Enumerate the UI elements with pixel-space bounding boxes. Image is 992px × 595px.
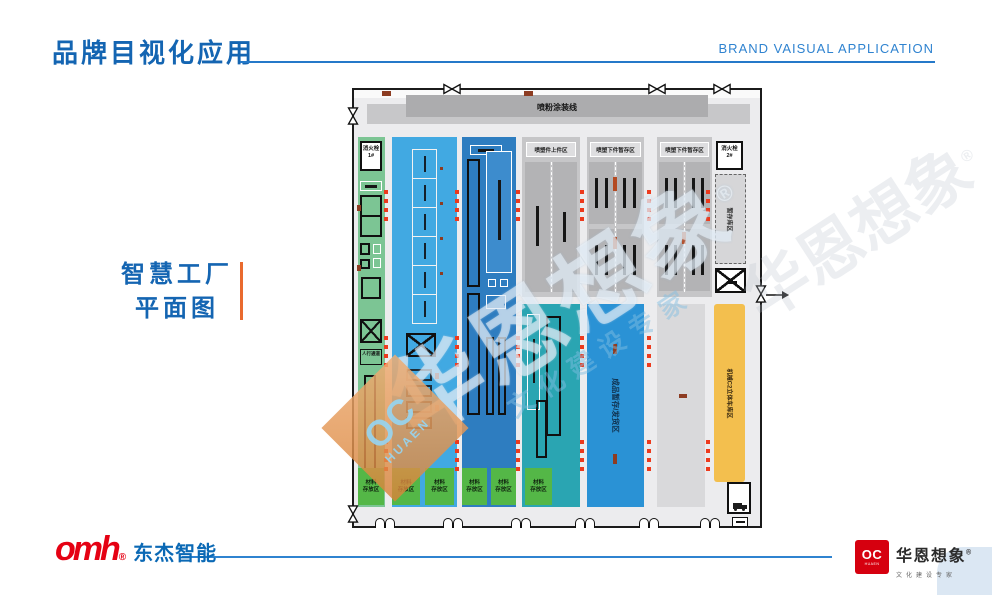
page-title: 品牌目视化应用 [52, 33, 255, 70]
window-symbol [347, 107, 359, 125]
paint-line-label: 喷粉涂装线 [406, 102, 708, 113]
storage-column [553, 162, 577, 292]
zone-teal-process: 材料 存放区 [522, 304, 580, 507]
window-symbol [648, 83, 666, 95]
dashed-aisle [551, 162, 552, 292]
equipment [486, 295, 506, 309]
dashed-aisle [684, 162, 685, 292]
storage-block [659, 162, 683, 224]
caption-accent-bar [240, 262, 243, 320]
micro-text [665, 245, 668, 275]
micro-text [701, 178, 704, 208]
micro-text [605, 178, 608, 208]
truck-room [727, 482, 751, 514]
door-symbol [511, 518, 531, 528]
equipment-panel [527, 314, 540, 410]
zone-header: 喷塑下件暂存区 [660, 142, 709, 157]
micro-text [365, 185, 377, 188]
equipment [360, 243, 370, 255]
huaen-logo: OC HUAEN 华恩想象® 文化建设专家 [855, 540, 973, 579]
storage-column [525, 162, 550, 292]
header-rule [240, 61, 935, 63]
storage-block [617, 162, 642, 224]
micro-text [692, 178, 695, 208]
caption-line1: 智慧工厂 [97, 258, 257, 292]
micro-text [674, 245, 677, 275]
micro-text [595, 245, 598, 275]
chain-marker [440, 167, 443, 170]
crossed-equipment [406, 333, 436, 357]
storage-block [659, 229, 683, 291]
gate-room [732, 517, 748, 527]
zone-finished-goods: 成品暂存/发货区 [587, 304, 644, 507]
crossed-equipment [360, 319, 382, 343]
door-symbol [639, 518, 659, 528]
micro-text [736, 521, 745, 523]
orange-marker [613, 177, 617, 191]
door-symbol [443, 518, 463, 528]
material-storage-box: 材料 存放区 [525, 468, 552, 505]
micro-text [665, 178, 668, 208]
equipment [536, 400, 547, 458]
chain-marker [440, 202, 443, 205]
caption-line2: 平面图 [97, 292, 257, 326]
micro-text [498, 180, 501, 240]
equipment [373, 258, 381, 268]
material-storage-box: 材料 存放区 [462, 468, 487, 505]
zone-light-blue-line: 材料 存放区 材料 存放区 [392, 137, 457, 507]
equipment-label [360, 181, 382, 191]
footer-rule [182, 556, 832, 558]
fire-hydrant-2: 消火栓 2# [716, 141, 743, 170]
door-symbol [575, 518, 595, 528]
marker [679, 394, 687, 398]
chain-marker [440, 272, 443, 275]
equipment [406, 369, 432, 381]
window-symbol [347, 505, 359, 523]
material-storage-box: 材料 存放区 [392, 468, 420, 505]
equipment [488, 279, 496, 287]
door-symbol [375, 518, 395, 528]
orange-marker [682, 232, 686, 244]
truck-icon [733, 502, 748, 511]
wall-marker [357, 265, 361, 271]
dongjie-logo: omh ® 东杰智能 [55, 532, 217, 566]
micro-text [623, 178, 626, 208]
dongjie-registered-mark: ® [119, 552, 126, 563]
micro-text [605, 245, 608, 275]
equipment [406, 417, 432, 429]
wall-marker [382, 91, 391, 96]
temp-warehouse-label: 暂存库区 [726, 207, 735, 231]
huaen-logo-square: OC HUAEN [855, 540, 889, 574]
chain-marker [440, 237, 443, 240]
equipment [546, 316, 561, 436]
exit-arrow [766, 290, 790, 300]
wall-marker [357, 205, 361, 211]
micro-text [674, 178, 677, 208]
zone-spray-unload-1: 喷塑下件暂存区 [587, 137, 644, 297]
page-title-english: BRAND VAISUAL APPLICATION [719, 41, 934, 56]
marker [613, 344, 617, 354]
window-symbol [443, 83, 461, 95]
micro-text [701, 245, 704, 275]
factory-floor-plan: 喷粉涂装线 消火栓 1# 人行通道 材料 存放区 [352, 88, 762, 528]
storage-block [617, 229, 642, 291]
zone-machine-garage: 机械C2立体车库区 [714, 304, 745, 482]
caption: 智慧工厂 平面图 [97, 258, 257, 326]
fire-hydrant-1: 消火栓 1# [360, 141, 382, 171]
storage-block [589, 162, 614, 224]
equipment [364, 375, 376, 471]
zone-temp-warehouse: 暂存库区 [715, 174, 746, 264]
zone-spray-loading: 喷塑件上件区 [522, 137, 580, 297]
micro-text [727, 281, 737, 284]
marker [613, 454, 617, 464]
dongjie-logo-mark: omh [55, 532, 118, 566]
micro-text [536, 206, 539, 246]
micro-text [563, 212, 566, 242]
huaen-oc-mark: OC [862, 548, 883, 562]
equipment [498, 337, 506, 415]
material-storage-box: 材料 存放区 [425, 468, 454, 505]
material-storage-box: 材料 存放区 [491, 468, 516, 505]
storage-block [589, 229, 614, 291]
walkway-label: 人行通道 [360, 349, 382, 365]
material-storage-box: 材料 存放区 [358, 468, 384, 505]
equipment-panel [486, 151, 512, 273]
wall-marker [435, 405, 439, 411]
door-symbol [700, 518, 720, 528]
zone-spray-unload-2: 喷塑下件暂存区 [657, 137, 712, 297]
micro-text [595, 178, 598, 208]
equipment [486, 337, 494, 415]
finished-goods-label: 成品暂存/发货区 [610, 378, 621, 433]
huaen-name: 华恩想象 [896, 548, 966, 565]
crossed-room [715, 268, 746, 293]
micro-text [623, 245, 626, 275]
orange-marker [613, 237, 617, 249]
equipment [360, 259, 370, 269]
zone-plain-gray [657, 304, 705, 507]
equipment [360, 195, 382, 237]
huaen-registered-mark: ® [966, 550, 973, 557]
equipment [467, 159, 480, 287]
micro-text [633, 178, 636, 208]
machine-chain [412, 149, 437, 324]
equipment [361, 277, 381, 299]
equipment [406, 401, 432, 413]
zone-green-utility: 消火栓 1# 人行通道 材料 存放区 [358, 137, 385, 507]
storage-block [686, 229, 710, 291]
micro-text [692, 245, 695, 275]
wall-marker [524, 91, 533, 96]
micro-text [633, 245, 636, 275]
zone-header: 喷塑下件暂存区 [590, 142, 641, 157]
equipment [406, 385, 432, 397]
huaen-tagline: 文化建设专家 [896, 570, 973, 579]
zone-header: 喷塑件上件区 [526, 142, 576, 157]
machine-garage-label: 机械C2立体车库区 [725, 368, 734, 418]
equipment [500, 279, 508, 287]
micro-text [533, 339, 535, 383]
huaen-sq-sub: HUAEN [865, 562, 880, 566]
equipment [373, 244, 381, 254]
equipment [467, 293, 480, 415]
zone-dark-blue-line: 材料 存放区 材料 存放区 [462, 137, 516, 507]
wall-marker [435, 373, 439, 379]
dongjie-logo-name: 东杰智能 [133, 537, 217, 566]
window-symbol [713, 83, 731, 95]
